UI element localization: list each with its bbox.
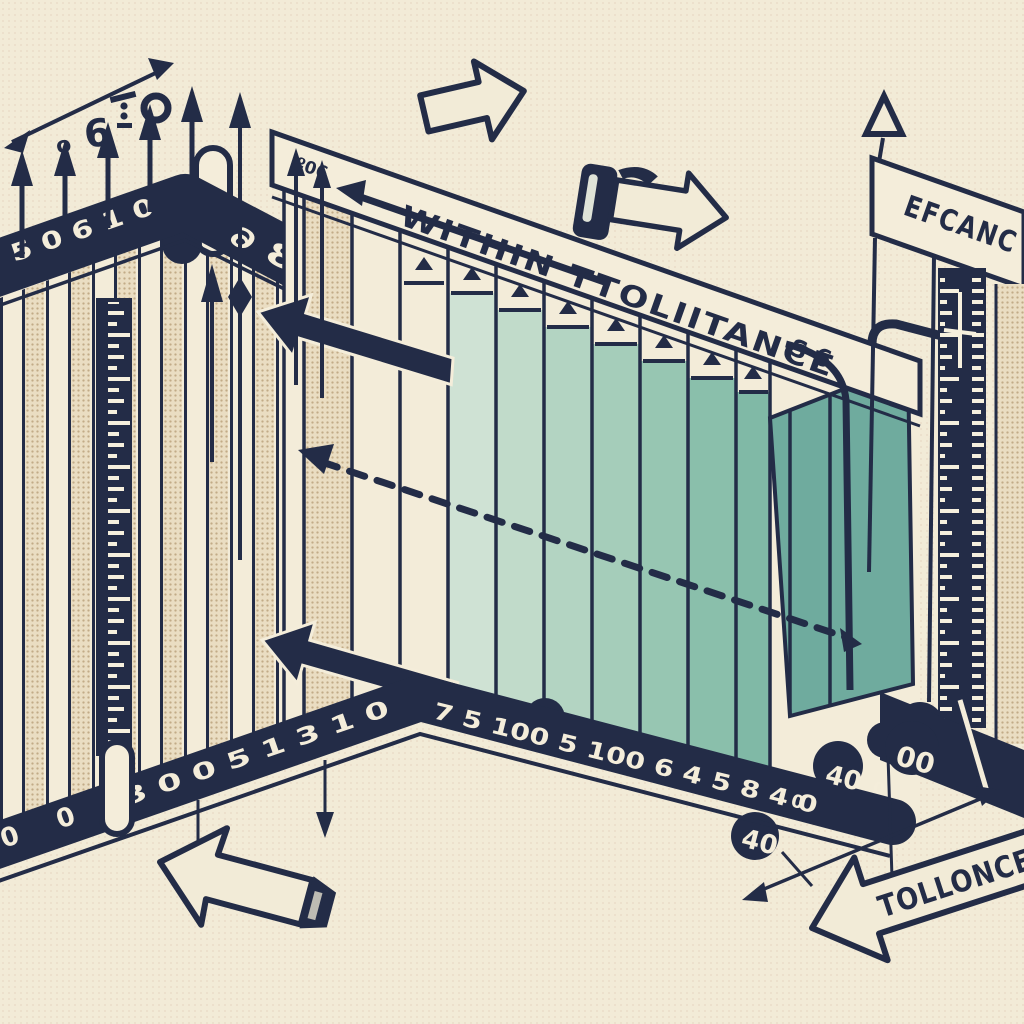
glyph-dot — [120, 102, 127, 109]
diagram-canvas: 5 0 6 1 0 ∂ 8 o 6 — [0, 0, 1024, 1024]
glyph-bar-small — [117, 123, 132, 128]
technical-tolerance-diagram: 5 0 6 1 0 ∂ 8 o 6 — [0, 0, 1024, 1024]
ruler-end-hook — [102, 742, 132, 834]
hatched-strip — [996, 284, 1024, 744]
glyph-dot — [120, 112, 127, 119]
left-ruler-ticks — [98, 302, 130, 754]
